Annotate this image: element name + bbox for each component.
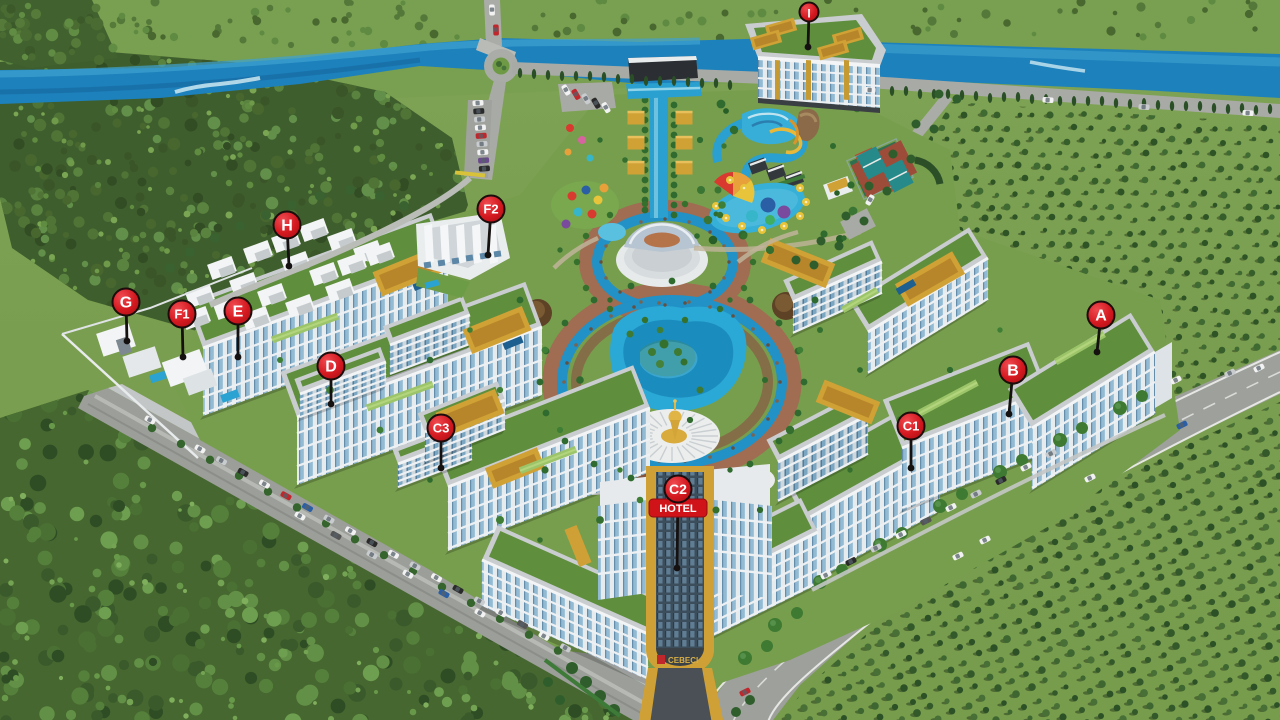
svg-text:CEBECI: CEBECI — [668, 656, 698, 665]
